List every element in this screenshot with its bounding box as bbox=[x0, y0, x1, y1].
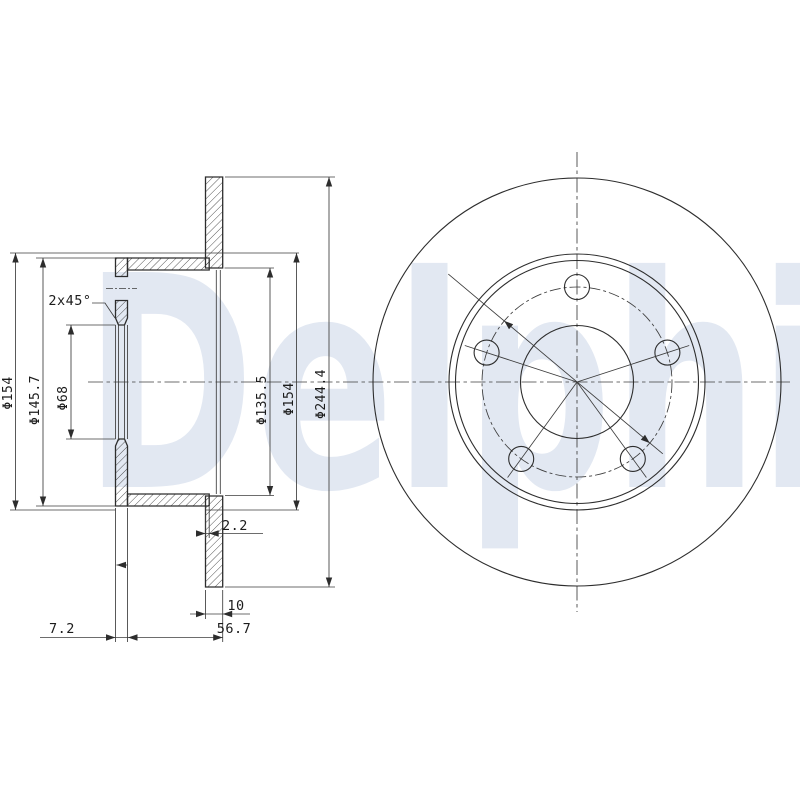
dim-label-hat-depth: 7.2 bbox=[49, 621, 75, 637]
hat-wall-top-section bbox=[128, 258, 210, 270]
flange-bottom-section bbox=[116, 439, 128, 506]
brake-disc-drawing: Delphi bbox=[0, 0, 800, 800]
dim-label-outer-diameter: Φ244.4 bbox=[314, 369, 329, 419]
flange-top-below-bolthole bbox=[116, 301, 128, 326]
dim-label-flange-od-left: Φ154 bbox=[1, 376, 16, 409]
dim-label-face-offset: 2.2 bbox=[222, 518, 248, 534]
dim-label-disc-thickness: 10 bbox=[227, 598, 244, 614]
friction-ring-top-section bbox=[206, 177, 223, 268]
hat-wall-bottom-section bbox=[128, 494, 210, 506]
chamfer-note: 2x45° bbox=[48, 293, 91, 309]
technical-drawing-page: Delphi bbox=[0, 0, 800, 800]
dim-label-hat-od: Φ145.7 bbox=[28, 375, 43, 425]
dim-label-friction-ring-id: Φ135.5 bbox=[255, 375, 270, 425]
dim-label-center-bore: Φ68 bbox=[56, 386, 71, 411]
dim-label-overall-width: 56.7 bbox=[217, 621, 252, 637]
flange-top-above-bolthole bbox=[116, 258, 128, 277]
dim-label-flange-od-right: Φ154 bbox=[282, 382, 297, 415]
